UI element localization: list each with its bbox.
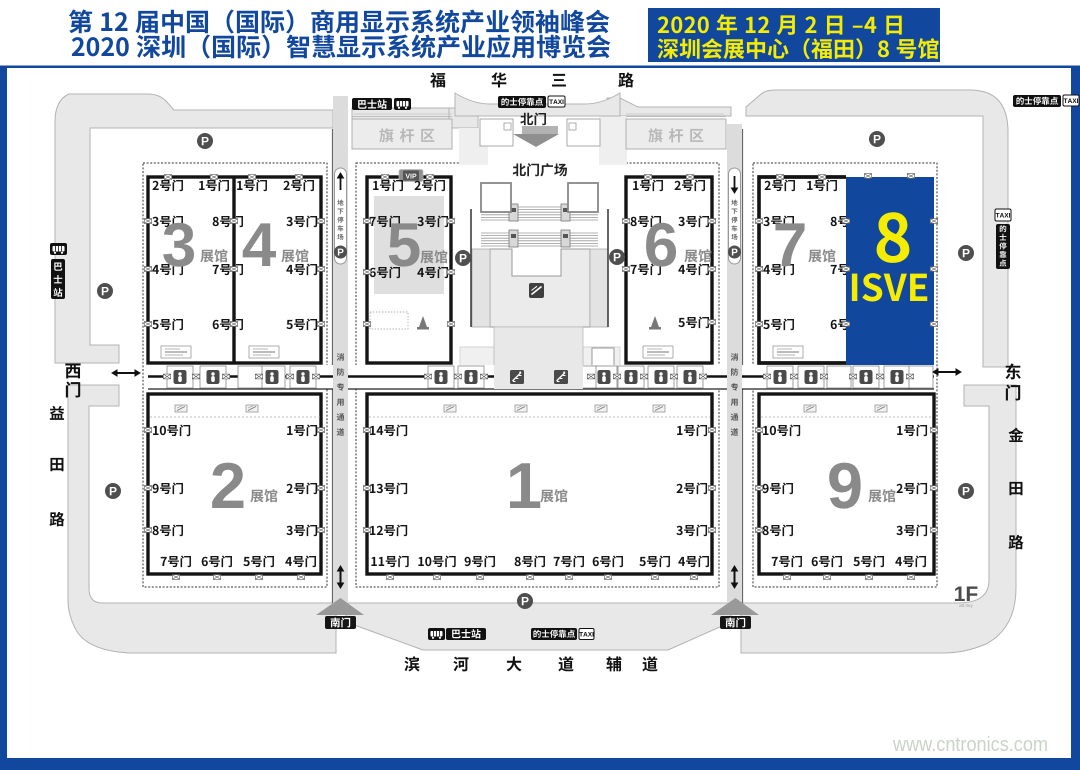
svg-text:www.cntronics.com: www.cntronics.com [892, 733, 1048, 756]
